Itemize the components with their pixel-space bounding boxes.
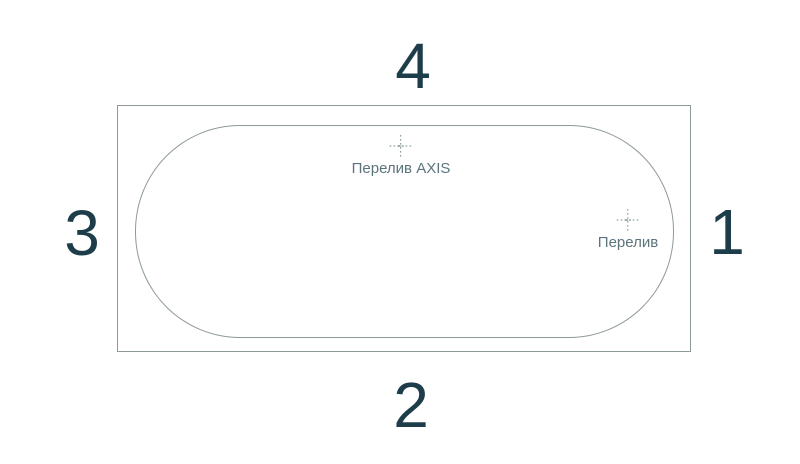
overflow-marker: Перелив	[598, 209, 658, 252]
overflow-label: Перелив	[598, 234, 658, 252]
side-number-left: 3	[64, 201, 100, 265]
side-number-right: 1	[709, 200, 745, 264]
overflow-axis-marker: Перелив AXIS	[352, 135, 451, 178]
crosshair-icon	[389, 135, 413, 157]
side-number-bottom: 2	[393, 373, 429, 437]
overflow-axis-label: Перелив AXIS	[352, 160, 451, 178]
crosshair-icon	[616, 209, 640, 231]
bathtub-top-view-diagram: 4 2 3 1 Перелив AXIS Перелив	[0, 0, 800, 464]
side-number-top: 4	[395, 34, 431, 98]
